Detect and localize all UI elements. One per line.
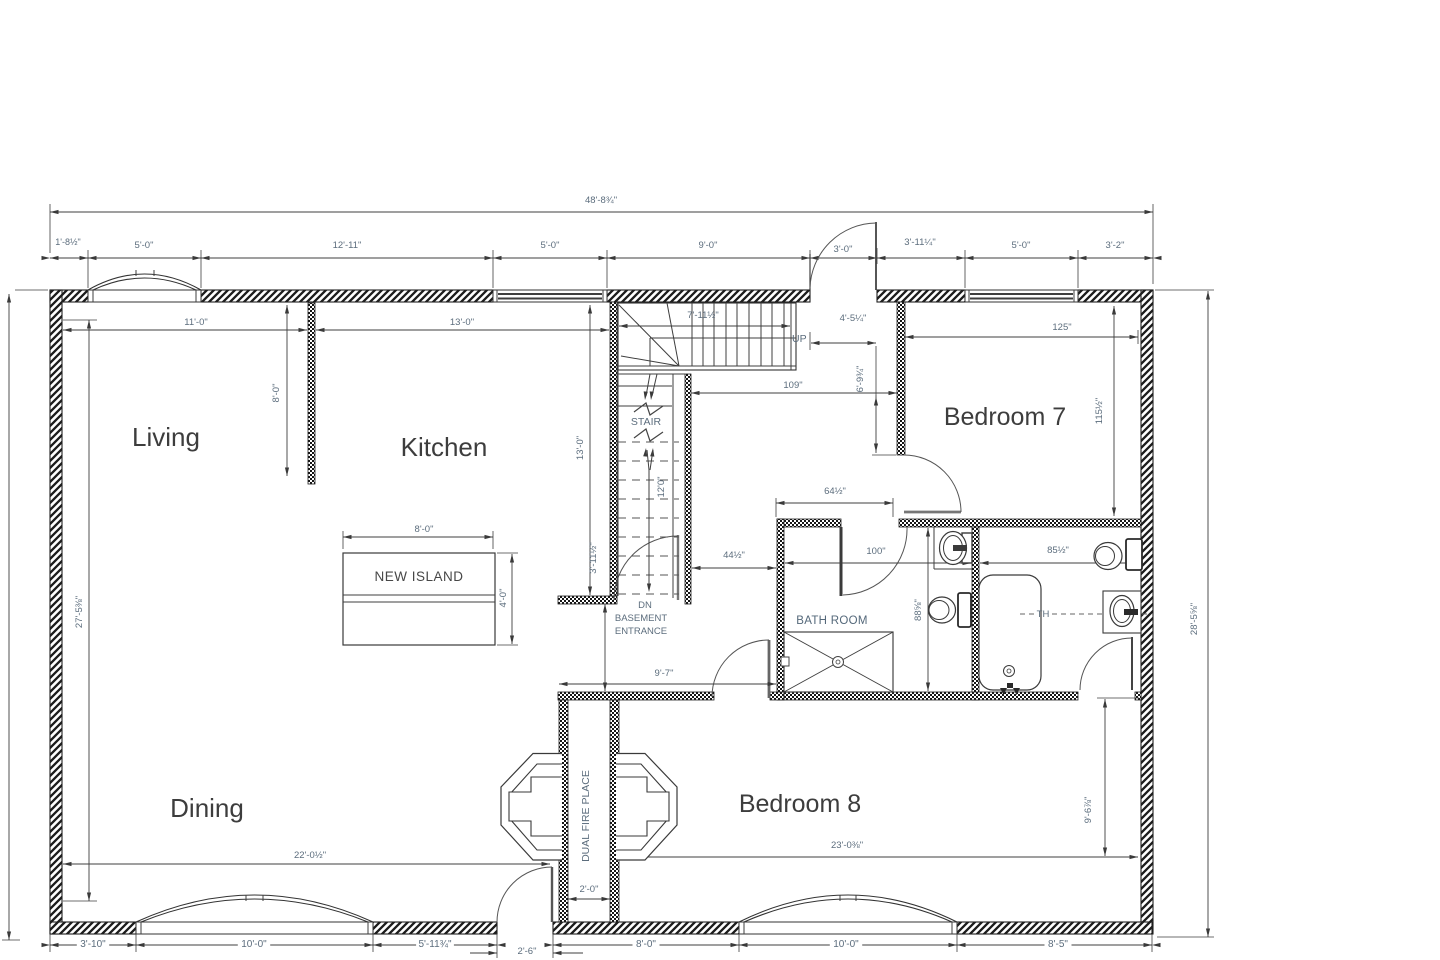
svg-text:TH: TH xyxy=(1037,609,1050,620)
svg-text:3'-11¼": 3'-11¼" xyxy=(904,237,935,248)
svg-text:STAIR: STAIR xyxy=(631,416,662,428)
svg-text:5'-11¾": 5'-11¾" xyxy=(418,939,452,950)
svg-text:64½": 64½" xyxy=(824,486,846,497)
svg-text:12'-11": 12'-11" xyxy=(333,240,362,251)
svg-text:DUAL FIRE PLACE: DUAL FIRE PLACE xyxy=(580,770,592,862)
svg-text:7'-11½": 7'-11½" xyxy=(687,310,718,321)
svg-text:3'-2": 3'-2" xyxy=(1106,240,1125,251)
svg-text:28'-5⅝": 28'-5⅝" xyxy=(1189,603,1200,635)
svg-text:3'-10": 3'-10" xyxy=(80,939,106,950)
svg-text:11'-0": 11'-0" xyxy=(184,317,208,328)
svg-text:8'-0": 8'-0" xyxy=(271,384,282,403)
svg-text:4'-0": 4'-0" xyxy=(498,589,509,608)
svg-text:88⅝": 88⅝" xyxy=(913,599,924,621)
svg-text:Bedroom 8: Bedroom 8 xyxy=(739,790,861,818)
svg-text:12'0": 12'0" xyxy=(656,476,667,497)
svg-text:5'-0": 5'-0" xyxy=(541,240,560,251)
svg-text:27'-5⅜": 27'-5⅜" xyxy=(74,596,85,628)
svg-text:6'-9¾": 6'-9¾" xyxy=(855,366,866,393)
svg-text:2'-6": 2'-6" xyxy=(518,946,537,957)
svg-text:NEW ISLAND: NEW ISLAND xyxy=(374,569,463,584)
svg-text:85½": 85½" xyxy=(1047,545,1069,556)
svg-text:109": 109" xyxy=(783,380,802,391)
svg-text:UP: UP xyxy=(792,333,807,345)
svg-text:10'-0": 10'-0" xyxy=(241,939,267,950)
svg-text:9'-7": 9'-7" xyxy=(655,668,674,679)
svg-text:9'-6⅞": 9'-6⅞" xyxy=(1083,797,1094,824)
svg-text:DN: DN xyxy=(638,600,652,611)
svg-text:22'-0½": 22'-0½" xyxy=(294,850,326,861)
svg-text:48'-8¾": 48'-8¾" xyxy=(585,195,617,206)
svg-text:8'-0": 8'-0" xyxy=(415,524,434,535)
svg-text:3'-0": 3'-0" xyxy=(834,244,853,255)
svg-text:Living: Living xyxy=(132,422,200,452)
svg-text:4'-5¼": 4'-5¼" xyxy=(840,313,867,324)
svg-text:13'-0": 13'-0" xyxy=(450,317,474,328)
svg-text:BASEMENT: BASEMENT xyxy=(615,613,667,624)
svg-text:ENTRANCE: ENTRANCE xyxy=(615,626,667,637)
svg-text:5'-0": 5'-0" xyxy=(1012,240,1031,251)
svg-text:Dining: Dining xyxy=(170,793,244,823)
svg-text:2'-0": 2'-0" xyxy=(580,884,599,895)
svg-text:44½": 44½" xyxy=(723,550,745,561)
svg-text:Kitchen: Kitchen xyxy=(401,432,488,462)
svg-text:10'-0": 10'-0" xyxy=(833,939,859,950)
svg-text:115½": 115½" xyxy=(1094,398,1105,424)
svg-text:3'-11½": 3'-11½" xyxy=(588,542,599,573)
svg-text:8'-5": 8'-5" xyxy=(1048,939,1068,950)
svg-text:5'-0": 5'-0" xyxy=(135,240,154,251)
svg-text:13'-0": 13'-0" xyxy=(575,436,586,460)
svg-text:Bedroom 7: Bedroom 7 xyxy=(944,403,1066,431)
svg-text:125": 125" xyxy=(1052,322,1071,333)
svg-text:1'-8½": 1'-8½" xyxy=(55,237,80,247)
svg-text:9'-0": 9'-0" xyxy=(699,240,718,251)
svg-text:BATH ROOM: BATH ROOM xyxy=(796,615,868,627)
svg-text:100": 100" xyxy=(866,546,885,557)
svg-text:23'-0⅜": 23'-0⅜" xyxy=(831,840,863,851)
svg-text:8'-0": 8'-0" xyxy=(636,939,656,950)
